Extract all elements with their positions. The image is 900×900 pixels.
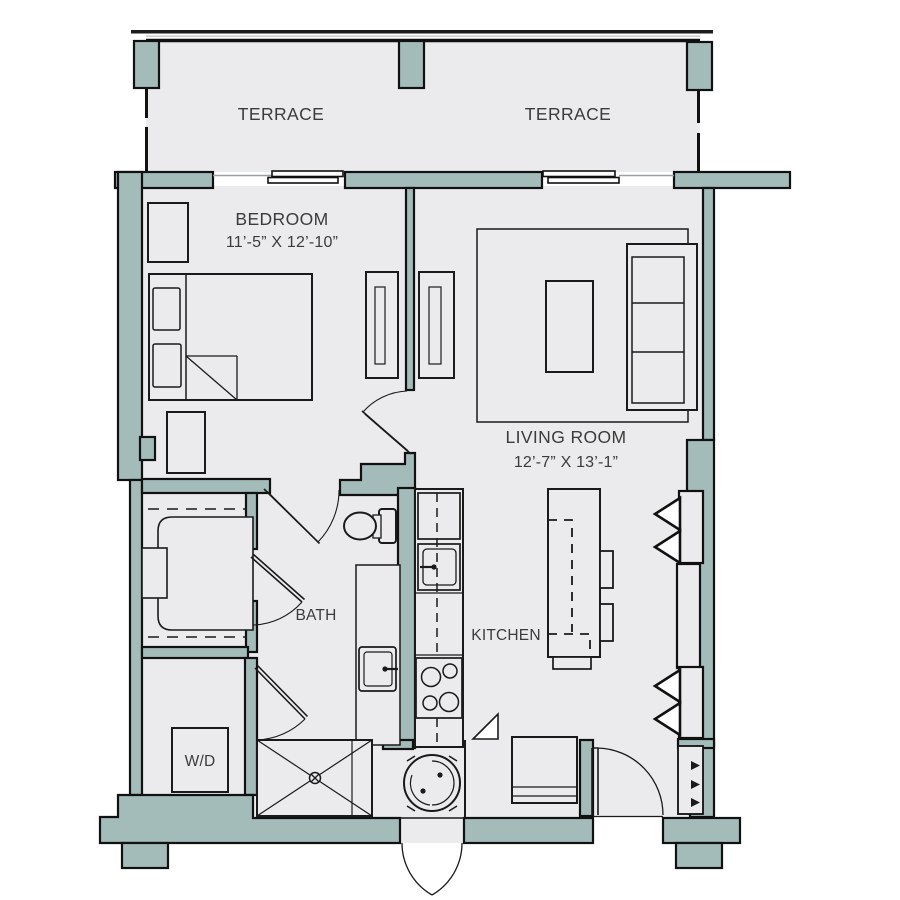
toilet-bowl	[344, 513, 376, 540]
bar-stool-2	[600, 604, 613, 641]
bedroom-wardrobe-rod	[375, 287, 385, 364]
wall-bottom-mid	[464, 818, 593, 843]
bath-label: BATH	[296, 607, 337, 624]
wd-label: W/D	[185, 753, 216, 770]
water-heater	[404, 755, 460, 811]
terrace-right-label: TERRACE	[525, 104, 611, 124]
dresser	[148, 203, 188, 262]
sofa-seat	[632, 257, 684, 403]
bedroom-slider-panel-2	[268, 178, 338, 184]
closet-shelf	[142, 548, 167, 598]
coffee-table	[546, 281, 593, 372]
bedroom-dims: 11’-5” X 12’-10”	[226, 234, 338, 251]
footing-left	[122, 843, 168, 868]
footing-right	[676, 843, 722, 868]
floorplan-svg: TERRACE TERRACE BEDROOM 11’-5” X 12’-10”…	[0, 0, 900, 900]
bar-stool-1	[600, 551, 613, 588]
terrace-column-left	[134, 41, 159, 88]
kitchen-island	[548, 489, 600, 657]
wall-entry-stub	[580, 740, 593, 816]
wall-top-3	[674, 172, 790, 188]
wall-bottom-right	[663, 818, 740, 843]
living-slider-panel-1	[543, 171, 615, 177]
wall-top-2	[345, 172, 542, 188]
wall-left-pilaster	[140, 437, 155, 460]
entry-nook-floor	[400, 815, 464, 843]
closet-panel-middle	[677, 564, 700, 668]
kitchen-label: KITCHEN	[471, 627, 540, 644]
wall-closet-wd	[142, 647, 248, 658]
wall-bedroom-south	[142, 479, 270, 493]
wall-bedroom-living	[406, 188, 414, 390]
water-heater-dot-2	[420, 788, 425, 793]
bedroom-slider-panel-1	[272, 171, 343, 177]
bedroom-chair	[167, 412, 205, 473]
floorplan-page: TERRACE TERRACE BEDROOM 11’-5” X 12’-10”…	[0, 0, 900, 900]
burner-2	[443, 664, 457, 678]
wall-wd-shower	[245, 658, 257, 795]
living-room-dims: 12’-7” X 13’-1”	[514, 454, 618, 471]
bedroom-label: BEDROOM	[235, 209, 328, 229]
closet-hanging-area	[158, 517, 253, 630]
vanity-faucet-knob	[382, 666, 387, 671]
living-wardrobe-rod	[429, 287, 441, 364]
refrigerator	[418, 493, 460, 539]
terrace-column-right	[687, 42, 712, 90]
burner-3	[423, 696, 437, 710]
kitchen-faucet-knob	[431, 564, 436, 569]
wall-left-lower	[130, 480, 142, 795]
closet-panel-lower	[679, 667, 703, 738]
pillow-1	[153, 288, 180, 330]
terrace-column-middle	[399, 41, 424, 88]
living-slider-panel-2	[548, 178, 619, 184]
water-heater-dot-1	[437, 772, 442, 777]
island-base	[553, 657, 591, 669]
pillow-2	[153, 344, 181, 387]
burner-1	[422, 668, 441, 687]
utility-closet	[678, 746, 703, 814]
wall-left-upper	[118, 172, 142, 480]
burner-4	[440, 693, 459, 712]
living-room-label: LIVING ROOM	[505, 427, 626, 447]
wall-right-upper	[703, 188, 714, 440]
entry-bench	[512, 737, 577, 803]
closet-panel-upper	[679, 491, 703, 563]
terrace-left-label: TERRACE	[238, 104, 324, 124]
